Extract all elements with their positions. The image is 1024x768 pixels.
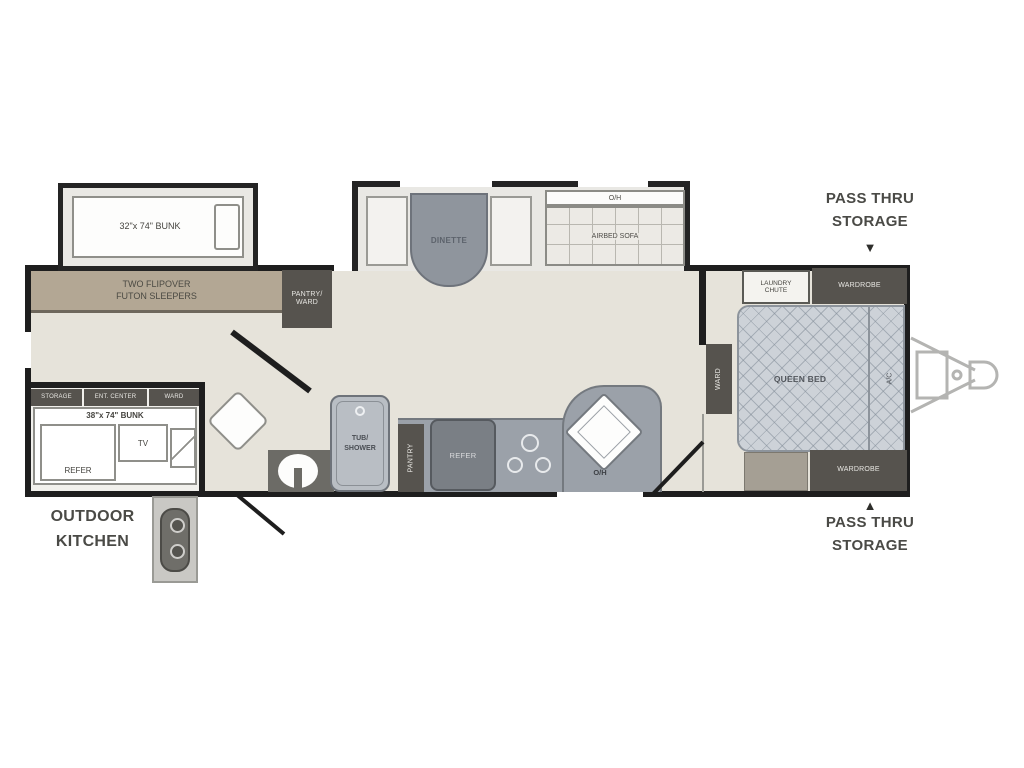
front-bunk-label: 32"x 74" BUNK (90, 221, 210, 231)
kitchen-sink-basin (577, 405, 631, 459)
tub-drain-icon (355, 406, 365, 416)
ward-cabinet-bed-foot: WARD (706, 344, 732, 414)
top-window (334, 265, 354, 271)
ward-small-label: WARD (165, 394, 184, 401)
arrow-down-icon: ▼ (790, 240, 950, 255)
tv: TV (118, 424, 168, 462)
entry-door (236, 494, 284, 534)
futon-label-line1: TWO FLIPOVER (122, 279, 190, 290)
ent-center-cabinet: ENT. CENTER (84, 389, 147, 406)
sofa-overhead-cabinet: O/H (545, 190, 685, 206)
storage-label: STORAGE (41, 394, 72, 401)
outdoor-line2: KITCHEN (15, 530, 170, 555)
floorplan-canvas: 32"x 74" BUNK TWO FLIPOVER FUTON SLEEPER… (0, 0, 1024, 768)
refer-rear-label: REFER (64, 466, 91, 475)
stove-burner-1 (521, 434, 539, 452)
pass-thru-bottom-label: PASS THRU STORAGE (790, 512, 950, 557)
bedroom-cabinet (744, 452, 808, 491)
slide-window-2 (578, 181, 648, 187)
outdoor-line1: OUTDOOR (15, 505, 170, 530)
storage-cabinet: STORAGE (31, 389, 82, 406)
grill-knob-1 (170, 518, 185, 533)
airbed-sofa: AIRBED SOFA (545, 206, 685, 266)
outdoor-kitchen-label: OUTDOOR KITCHEN (15, 505, 170, 555)
hitch-icon (911, 338, 997, 412)
futon-sleepers-bench: TWO FLIPOVER FUTON SLEEPERS (31, 271, 282, 313)
front-bunk-pillow (214, 204, 240, 250)
bedroom-partition (702, 414, 704, 492)
tub-shower: TUB/ SHOWER (330, 395, 390, 492)
pantry-ward-line1: PANTRY/ (291, 291, 322, 299)
pantry-cabinet: PANTRY (398, 424, 424, 492)
corner-cabinet (170, 428, 196, 468)
pass-thru-top-line1: PASS THRU (790, 188, 950, 211)
bed-pillow-divider (868, 307, 870, 450)
wardrobe-front-top: WARDROBE (812, 268, 907, 304)
toilet-seat (294, 468, 302, 488)
pantry-ward-line2: WARD (296, 299, 318, 307)
sofa-oh-label: O/H (609, 195, 621, 202)
rear-bunk-label: 38"x 74" BUNK (33, 411, 197, 420)
pass-thru-bottom-line1: PASS THRU (790, 512, 950, 535)
ac-unit: A/C (878, 352, 902, 404)
airbed-sofa-label: AIRBED SOFA (590, 233, 641, 240)
grill-knob-2 (170, 544, 185, 559)
refrigerator-kitchen: REFER (430, 419, 496, 491)
slide-window-1 (400, 181, 492, 187)
futon-label-line2: FUTON SLEEPERS (116, 291, 197, 302)
dinette-bench-right (490, 196, 532, 266)
stove-burner-3 (535, 457, 551, 473)
wardrobe-bottom-label: WARDROBE (837, 466, 880, 474)
laundry-line2: CHUTE (765, 287, 787, 294)
pass-thru-bottom-line2: STORAGE (790, 535, 950, 558)
pass-thru-top-line2: STORAGE (790, 211, 950, 234)
refer-kitchen-label: REFER (450, 451, 477, 460)
arrow-up-icon: ▲ (790, 498, 950, 513)
queen-bed-label: QUEEN BED (755, 374, 845, 384)
ward-small-cabinet: WARD (149, 389, 199, 406)
stove-burner-2 (507, 457, 523, 473)
dinette-label: DINETTE (431, 236, 467, 245)
pantry-ward-cabinet: PANTRY/ WARD (282, 270, 332, 328)
rear-room-wall-top (25, 382, 205, 388)
outdoor-grill-icon (160, 508, 190, 572)
ac-label: A/C (886, 372, 893, 384)
laundry-chute: LAUNDRY CHUTE (742, 270, 810, 304)
wardrobe-front-bottom: WARDROBE (810, 450, 907, 491)
dinette-bench-left (366, 196, 408, 266)
ent-center-label: ENT. CENTER (95, 394, 137, 401)
wardrobe-top-label: WARDROBE (838, 282, 881, 290)
kitchen-overhead-label: O/H (578, 468, 622, 477)
bedroom-wall (699, 271, 706, 345)
laundry-line1: LAUNDRY (761, 280, 792, 287)
tv-label: TV (138, 439, 148, 448)
dinette-table: DINETTE (410, 193, 488, 287)
rear-room-wall-right (199, 382, 205, 497)
rear-window (25, 332, 31, 368)
ward-vertical-label: WARD (715, 368, 723, 390)
pass-thru-top-label: PASS THRU STORAGE (790, 188, 950, 233)
refrigerator-rear: REFER (40, 424, 116, 481)
pantry-vertical-label: PANTRY (407, 444, 415, 473)
